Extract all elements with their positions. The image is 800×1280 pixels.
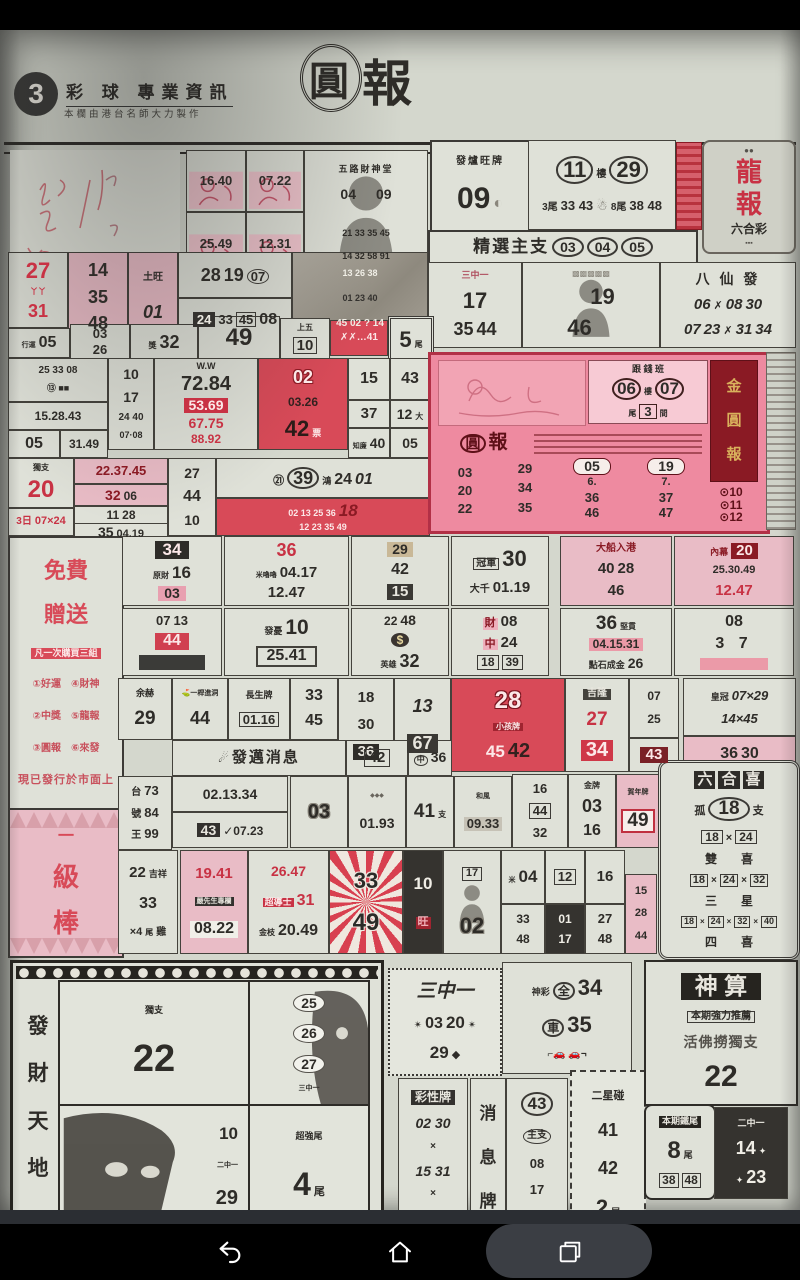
ad-text-line: 281907 <box>201 266 270 285</box>
ad-text-line: 28 <box>635 908 647 920</box>
ad-text-line: 英雄32 <box>380 652 419 671</box>
ad-text-line: 43 <box>521 1092 554 1116</box>
ad-text-line: × <box>430 1142 436 1153</box>
ad-text-line: 大千01.19 <box>470 580 531 596</box>
ad-text-line: 車35 <box>542 1013 592 1038</box>
ad-text-line: 34 <box>155 541 190 559</box>
ad-text-line: 03 <box>308 802 330 823</box>
ad-text-line: 37 <box>659 491 673 505</box>
ad-32-06: 3206 <box>74 484 168 506</box>
ad-text-line: 25.41 <box>256 646 316 667</box>
ad-text-line: 22 <box>704 1061 737 1093</box>
ad-crown-0729: 皇冠07×2914×45 <box>683 678 796 736</box>
ad-27-44-10: 274410 <box>168 458 216 536</box>
stove-lucky-box: 發爐旺牌09◐ <box>430 140 530 232</box>
ad-text-line: 17 <box>558 933 571 946</box>
two-star-match: 二星碰41422尾 <box>570 1070 646 1210</box>
masthead-circle-char: 圓 <box>300 44 362 112</box>
ad-text-line: 本期鐵尾 <box>659 1116 701 1127</box>
ad-holeinone-44: ⛳一桿進洞44 <box>172 678 228 740</box>
ad-text-line: 丫丫 <box>30 288 46 296</box>
ad-text-line: 3630 <box>720 746 759 763</box>
ad-text-line: 35 <box>88 288 108 307</box>
ad-text-line: 05 <box>573 458 611 475</box>
ad-39-24-01: ㉑39鴻2401 <box>216 458 430 498</box>
ad-text-line: 4542 <box>486 741 530 762</box>
ad-text-line: 財08 <box>483 614 518 630</box>
nav-shadow-strip <box>0 1210 800 1224</box>
ad-text-line: 30 <box>358 717 375 733</box>
ad-text-line: ◆◆◆ <box>370 793 384 799</box>
ad-text-line: 22 <box>458 502 472 516</box>
ad-text-line: 35 <box>518 501 532 515</box>
color-nature-board: 彩性牌02 30×15 31×27 49 <box>398 1078 468 1210</box>
fortune-world-title: 發財天地 <box>18 990 58 1206</box>
ad-text-line: 五路財神堂 <box>338 165 393 174</box>
ad-text-line: 72.84 <box>181 374 231 395</box>
back-button[interactable] <box>198 1230 262 1274</box>
ad-text-line: 02 <box>293 368 313 387</box>
ad-text-line: 27 <box>586 710 607 730</box>
edition-number-badge: 3 <box>14 72 58 116</box>
ad-text-line: 3544 <box>453 320 496 339</box>
ad-text-line: 22.37.45 <box>96 464 147 478</box>
ad-22-lucky: 22吉祥33×4尾雞 <box>118 850 178 954</box>
ad-text-line: 超強尾 <box>295 1132 322 1141</box>
android-nav-bar <box>0 1224 800 1280</box>
ad-text-line: 36 <box>276 541 296 560</box>
ad-text-line: 28 <box>495 688 522 713</box>
red-vertical-strip <box>676 142 702 230</box>
ad-text-line: 05 <box>25 436 43 453</box>
ad-text-line: ⛳一桿進洞 <box>182 690 219 697</box>
ad-text-line: 三中一 <box>416 982 473 1002</box>
three-hit-one-box: 三中一173544 <box>428 262 522 348</box>
section-title: 彩 球 專業資訊 <box>66 78 233 107</box>
top-grade-promo: 一級棒 <box>8 808 124 958</box>
ad-text-line: 免費 <box>44 559 88 582</box>
ad-text-line: 53.69 <box>184 398 227 413</box>
ad-text-line: 賀年牌 <box>628 789 649 796</box>
ad-text-line: ✗✗…41 <box>340 333 378 344</box>
ad-0933: 和風09.33 <box>454 776 512 848</box>
ad-text-line: 12 <box>554 869 576 885</box>
ad-text-line: 29 <box>518 462 532 476</box>
ad-text-line: 67.75 <box>188 416 223 431</box>
ad-text-line: 10 <box>219 1125 238 1143</box>
ad-text-line: 17 <box>462 867 482 881</box>
ad-text-line: ③圓報 ⑥來發 <box>33 744 100 755</box>
ad-text-line: 45 <box>305 713 323 730</box>
ad-text-line: 二中一 <box>737 1119 764 1128</box>
pic-box-1640: 16.40 <box>186 150 246 212</box>
ad-text-line: 07.22 <box>259 174 292 188</box>
ad-text-line: 03 <box>93 327 107 341</box>
recent-apps-icon <box>556 1238 584 1266</box>
ad-text-line: 皇冠07×29 <box>711 689 769 703</box>
ad-152843: 15.28.43 <box>8 402 108 430</box>
ad-text-line: 13 <box>412 697 432 716</box>
ad-text-line: 米04 <box>509 868 538 886</box>
ad-text-line: 05 <box>402 436 418 451</box>
ad-33-48: 3348 <box>501 904 545 954</box>
ad-fayou-10-2541: 發憂1025.41 <box>224 608 349 676</box>
ad-text-line: 22吉祥 <box>129 865 167 881</box>
fortune-tail-4: 超強尾4尾 <box>248 1104 370 1210</box>
ad-text-line: 17 <box>530 1183 544 1197</box>
ad-text-line: 3 7 <box>715 636 752 653</box>
ad-text-line: 42 <box>598 1159 618 1178</box>
ad-text-line: 彩性牌 <box>411 1090 455 1105</box>
masthead-char: 報 <box>362 56 416 112</box>
ad-text-line: 6. <box>587 477 596 489</box>
ad-text-line: 余赫 <box>136 689 154 698</box>
ad-text-line: 行運05 <box>22 335 57 352</box>
masthead-logo: 圓報 <box>300 44 416 116</box>
ad-text-line: ①好運 ④財神 <box>33 680 100 691</box>
ad-red-02-42: 0203.2642票 <box>258 358 348 450</box>
ad-text-line: 37 <box>361 406 378 422</box>
pic-box-0722: 07.22 <box>246 150 304 212</box>
ad-text-line: 45 02 ? 14 <box>336 319 384 330</box>
ad-text-line: 41支 <box>414 802 446 822</box>
ad-text-line: 32 <box>533 826 547 840</box>
ad-text-line: 10 <box>123 367 139 382</box>
ad-text-line: ✴0320✴ <box>414 1014 477 1033</box>
ad-text-line: 10 <box>293 337 318 355</box>
ad-text-line: 46 <box>608 583 625 599</box>
ad-3day-0724: 3日07×24 <box>8 508 74 536</box>
ad-text-line: 4028 <box>598 561 634 577</box>
ad-text-line: 03 <box>158 586 186 601</box>
ad-text-line: 級 <box>53 864 79 891</box>
ad-text-line: 36 <box>585 491 599 505</box>
ad-text-line: 09.33 <box>464 817 503 831</box>
ad-text-line: ☄發邁消息 <box>218 750 300 766</box>
ad-text-line: 15 <box>360 371 378 388</box>
ad-gold-03-16: 金牌0316 <box>568 774 616 848</box>
ad-36-041531-26: 36堅貫04.15.31點石成金26 <box>560 608 672 676</box>
ad-text-line: 金枝20.49 <box>259 923 318 940</box>
three-pick-one-burst: 三中一✴0320✴29◆ <box>388 968 502 1076</box>
ad-text-line: 49 <box>621 809 654 833</box>
ad-text-line: 3日07×24 <box>16 516 65 528</box>
ad-text-line: 發爐旺牌 <box>456 157 504 168</box>
ad-text-line: 25.49 <box>200 237 233 251</box>
ad-text-line: 33 <box>305 688 323 705</box>
ad-text-line: 知廉40 <box>353 436 386 451</box>
ad-text-line: 03.26 <box>288 396 318 409</box>
ad-text-line: 報 <box>726 447 741 463</box>
ad-text-line: ⊙12 <box>719 511 742 524</box>
ad-text-line: 3848 <box>659 1173 701 1188</box>
ad-text-line: 26.47 <box>271 864 306 879</box>
fortune-252627: 252627三中一 <box>248 980 370 1106</box>
ad-text-line: 33 <box>139 896 157 913</box>
eight-immortals-box: 八 仙 發06✗08300723✗3134 <box>660 262 796 348</box>
ad-text-line: 44 <box>155 633 189 650</box>
ad-text-line: 02 <box>460 914 484 937</box>
ad-text-line: 雙 喜 <box>705 853 753 866</box>
ad-text-line: 44 <box>190 709 210 728</box>
ad-text-line: ⑬ ■■ <box>47 384 69 393</box>
ad-text-line: 25.30.49 <box>713 565 756 577</box>
ad-text-line: 獎32 <box>148 333 179 352</box>
ad-text-line: 22 <box>133 1040 175 1080</box>
ad-text-line: 7. <box>661 477 670 489</box>
ad-text-line: 12.47 <box>715 583 753 599</box>
ad-text-line: 和風 <box>476 793 490 800</box>
ad-text-line: 18×24 <box>701 830 756 845</box>
ad-text-line: 尾3間 <box>628 404 667 420</box>
newspaper-page[interactable]: 3 彩 球 專業資訊 本欄由港台名師大力製作 圓報 16.4007.2225.4… <box>0 30 800 1210</box>
recents-button[interactable] <box>538 1230 602 1274</box>
ad-text-line: 龍 <box>736 159 762 186</box>
figure-19-46-box: ▩▩▩▩▩ 1946 <box>522 262 660 348</box>
pink-logo: 圓報 <box>438 428 530 458</box>
pink-col-19: 197.3747 <box>630 456 702 522</box>
ad-ww-7284: W.W72.8453.6967.7588.92 <box>154 358 258 450</box>
ad-text-line: 八 仙 發 <box>696 272 761 287</box>
ad-text-line: 17 <box>123 390 139 405</box>
ad-text-line: 19.41 <box>195 866 233 882</box>
ad-text-line: 10 <box>414 875 433 893</box>
ad-text-line: 26 <box>93 343 107 357</box>
ad-text-line: 18×24×32×40 <box>681 916 777 927</box>
home-button[interactable] <box>368 1230 432 1274</box>
ad-08-37: 083 7 <box>674 608 794 676</box>
ad-223745: 22.37.45 <box>74 458 168 484</box>
ad-text-line: 27 <box>26 259 50 282</box>
ad-text-line: 19 <box>567 285 614 309</box>
ad-text-line: 20 <box>28 477 55 502</box>
ad-text-line: 12.31 <box>259 237 292 251</box>
ad-text-line: 14×45 <box>721 712 758 726</box>
ad-text-line: 34 <box>518 481 532 495</box>
ad-text-line: 16 <box>533 782 547 796</box>
ad-sunburst-33-49: 3349 <box>329 850 403 954</box>
ad-text-line: 13 26 38 <box>342 269 377 278</box>
ad-text-line: 49 <box>353 910 380 935</box>
ad-text-line: 31 <box>28 302 48 321</box>
ad-text-line: 26 <box>293 1024 325 1043</box>
ad-wealth-08-24: 財08中241839 <box>451 608 549 676</box>
ad-12-boxed: 12 <box>545 850 585 904</box>
ad-27-48: 2748 <box>585 904 625 954</box>
ad-text-line: 精選主支030405 <box>473 237 653 258</box>
ad-text-line: 33 <box>354 869 378 892</box>
ad-text-line: 大船入港 <box>596 544 636 555</box>
ad-text-line: 01 <box>558 913 571 926</box>
ad-03-26: 0326 <box>70 324 130 360</box>
ad-16-44-32: 164432 <box>512 774 568 848</box>
sil-decoration <box>444 851 500 953</box>
ad-text-line: 贈送 <box>44 603 88 626</box>
ad-text-line: 三中一 <box>299 1085 320 1092</box>
ad-1941-0822: 19.41嚴先生專欄08.22 <box>180 850 248 954</box>
ad-kids-28-45-42: 28小孩牌4542 <box>451 678 565 772</box>
ad-text-line: 12大 <box>397 407 424 422</box>
ad-36-0417-1247: 36米嚕嚕04.1712.47 <box>224 536 349 606</box>
fortune-10-29: 10二中一29 <box>58 1104 250 1210</box>
ad-03-outline: 03 <box>290 776 348 848</box>
ad-0193: ◆◆◆01.93 <box>348 776 406 848</box>
ad-text-line: 25 <box>647 713 660 726</box>
ad-text-line: 29 <box>134 709 155 729</box>
ad-text-line: 10 <box>184 513 200 528</box>
god-calc-box: 神 算本期強力推薦活佛撈獨支22 <box>644 960 798 1106</box>
ad-text-line: 棒 <box>53 910 79 937</box>
ad-41-zhi: 41支 <box>406 776 454 848</box>
gold-yuanbao-panel: 金圓報 <box>710 360 758 482</box>
ad-text-line: 03 <box>582 797 602 816</box>
eleven-twentynine-box: 11樓293尾33 43☃8尾38 48 <box>528 140 676 230</box>
ad-text-line <box>139 655 205 670</box>
ad-text-line: 0723✗3134 <box>684 322 772 338</box>
ad-04: 米04 <box>501 850 545 904</box>
back-arrow-icon <box>214 1236 246 1268</box>
ad-05c: 05 <box>8 430 60 458</box>
ad-text-line: 24 40 <box>118 413 143 424</box>
ad-text-line: 15 <box>387 584 414 600</box>
ad-text-line: 16.40 <box>200 174 233 188</box>
ad-text-line: 獨支 <box>33 464 49 472</box>
ad-text-line: 42票 <box>285 417 322 440</box>
ad-text-line: 08.22 <box>190 921 238 938</box>
pink-0607: 跟 錢 班06樓07尾3間 <box>588 360 708 424</box>
ad-red-number-rows: 02 13 25 361812 23 35 49 <box>216 498 430 536</box>
ad-text-line: 內幕20 <box>710 543 758 559</box>
ad-16b: 16 <box>585 850 625 904</box>
ad-07-25: 0725 <box>629 678 679 738</box>
ad-text-line: 三 星 <box>705 895 753 908</box>
ad-12-big: 12大 <box>390 400 430 428</box>
ad-text-line: 吉隆 <box>583 689 611 700</box>
ad-text-line: 19 <box>647 458 685 475</box>
ad-text-line: 上五 <box>297 324 313 332</box>
ad-text-line: 01.16 <box>239 712 280 728</box>
ad-zhilian-40: 知廉40 <box>348 428 390 458</box>
ad-text-line: 31.49 <box>69 438 99 451</box>
ad-text-line: 27 <box>293 1055 325 1074</box>
ad-black-banner-10: 10旺 <box>403 850 443 954</box>
ad-text-line: 33 <box>516 913 529 926</box>
ad-text-line <box>700 658 768 670</box>
ad-text-line: 01 <box>143 303 163 322</box>
ad-text-line: 46 <box>567 316 614 340</box>
ad-text-line: 土旺 <box>143 273 163 284</box>
ad-text-line: 48 <box>598 932 612 946</box>
ad-text-line: 六合彩 <box>731 223 767 236</box>
long-bao-ad: ●●龍報六合彩▪▪▪ <box>702 140 796 254</box>
ad-3149: 31.49 <box>60 430 108 458</box>
ad-text-line: 米嚕嚕04.17 <box>256 565 318 581</box>
ad-text-line: 消 <box>480 1105 497 1123</box>
ad-text-line: 報 <box>736 191 762 218</box>
pink-col-293435: 293435 <box>496 456 554 520</box>
ad-text-line: 14 32 58 91 <box>342 252 390 261</box>
pink-sketch <box>438 360 586 426</box>
ad-28-19-07: 281907 <box>178 252 292 298</box>
ad-text-line: 07 <box>647 690 660 703</box>
ad-text-line: 11樓29 <box>556 156 648 183</box>
ad-text-line: W.W <box>197 362 216 371</box>
ad-text-line: 跟 錢 班 <box>632 365 664 374</box>
ad-text-line: 財 <box>28 1063 49 1085</box>
vertical-text-strip <box>766 352 796 530</box>
ad-text-line: 02.13.34 <box>203 787 258 802</box>
ad-insider-20: 內幕2025.30.4912.47 <box>674 536 794 606</box>
ad-text-line: 15 31 <box>415 1164 450 1179</box>
ad-text-line: 42 <box>364 749 391 767</box>
ad-text-line: 43 <box>640 747 669 763</box>
ad-32: 獎32 <box>130 324 198 360</box>
ad-text-line: 孤18支 <box>694 797 763 821</box>
ad-text-line: 2尾 <box>596 1196 620 1210</box>
ad-text-line: 15 <box>635 886 647 898</box>
ad-fast-news: ☄發邁消息 <box>172 740 346 776</box>
ad-text-line: 44 <box>183 489 201 506</box>
ad-0713-44: 071344 <box>122 608 222 676</box>
ad-text-line: 44 <box>635 931 647 943</box>
ad-text-line: 27 <box>598 912 612 926</box>
ad-05: 行運05 <box>8 328 70 358</box>
section-subtitle: 本欄由港台名師大力製作 <box>64 106 202 120</box>
ad-text-line: 旺 <box>416 917 431 929</box>
ad-text-line: 25 <box>293 994 325 1013</box>
ad-figure-17-02: 1702 <box>443 850 501 954</box>
ad-15-28-44: 152844 <box>625 874 657 954</box>
ad-text-line: 四 喜 <box>705 936 753 949</box>
ad-text-line: 08 <box>725 614 743 631</box>
ad-text-line: 21 33 35 45 <box>342 229 390 238</box>
ad-text-line: 12 23 35 49 <box>299 523 347 532</box>
ad-text-line: 三中一 <box>461 271 488 280</box>
ad-text-line: 12.47 <box>268 585 306 601</box>
ad-text-line: ●● <box>744 147 754 155</box>
ad-text-line: 27 <box>184 466 200 481</box>
ad-text-line: 凡一次購買三組 <box>31 648 100 659</box>
ad-text-line: 中36 <box>414 750 447 765</box>
ad-text-line: ▪▪▪ <box>745 240 752 247</box>
ad-text-line: 發 <box>28 1016 49 1038</box>
ad-text-line: 小孩牌 <box>493 723 523 731</box>
ad-text-line: 03 <box>458 466 472 480</box>
ad-10-upper5: 上五10 <box>280 318 330 360</box>
ad-text-line: 一 <box>58 829 74 846</box>
ad-text-line: 47 <box>659 506 673 520</box>
ad-34-16-03: 34原財1603 <box>122 536 222 606</box>
ad-43-0723: 43✓07.23 <box>172 812 288 848</box>
ad-text-line: 圓報 <box>460 433 507 454</box>
ad-text-line: 04.15.31 <box>589 638 644 651</box>
ad-10-17-col: 101724 4007·08 <box>108 358 154 450</box>
ad-text-line: 神彩全34 <box>532 976 603 1001</box>
god-calc-car-box: 神彩全34車35⌐🚗 🚗¬ <box>502 962 632 1074</box>
ad-text-line: 牌 <box>480 1193 497 1210</box>
main-support-43: 43主支081726 <box>506 1078 568 1210</box>
ad-champion-30: 冠軍30大千01.19 <box>451 536 549 606</box>
ad-021334: 02.13.34 <box>172 776 288 812</box>
ad-text-line: 本期強力推薦 <box>687 1011 755 1024</box>
ad-text-line: 06✗0830 <box>694 297 762 313</box>
ad-text-line: 冠軍30 <box>473 547 526 571</box>
ad-text-line: 主支 <box>523 1129 551 1144</box>
home-icon <box>385 1237 415 1267</box>
newspaper-header: 3 彩 球 專業資訊 本欄由港台名師大力製作 圓報 <box>0 38 800 134</box>
ad-text-line: 息 <box>480 1149 497 1167</box>
ad-text-line: 20 <box>458 484 472 498</box>
